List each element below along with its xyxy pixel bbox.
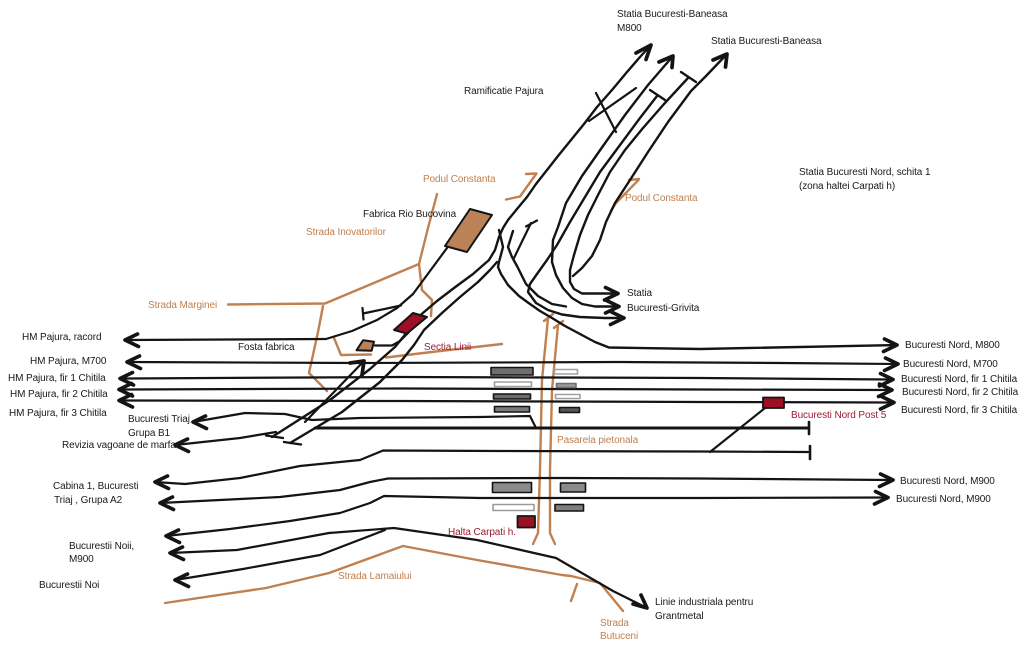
svg-text:Bucuresti Nord, M800: Bucuresti Nord, M800 bbox=[905, 340, 1000, 351]
svg-text:Bucuresti Nord Post 5: Bucuresti Nord Post 5 bbox=[791, 410, 887, 421]
svg-text:Bucuresti Nord, fir 2 Chitila: Bucuresti Nord, fir 2 Chitila bbox=[902, 387, 1019, 398]
svg-text:Bucuresti Nord, fir 1 Chitila: Bucuresti Nord, fir 1 Chitila bbox=[901, 374, 1018, 385]
svg-text:Pasarela pietonala: Pasarela pietonala bbox=[557, 435, 639, 446]
svg-text:HM Pajura, fir 3 Chitila: HM Pajura, fir 3 Chitila bbox=[9, 408, 107, 419]
svg-text:(zona haltei Carpati h): (zona haltei Carpati h) bbox=[799, 181, 895, 192]
svg-text:Podul Constanta: Podul Constanta bbox=[423, 174, 496, 185]
svg-text:Bucuresti Triaj: Bucuresti Triaj bbox=[128, 414, 190, 425]
svg-text:Cabina 1, Bucuresti: Cabina 1, Bucuresti bbox=[53, 481, 138, 492]
svg-text:Strada: Strada bbox=[600, 618, 629, 629]
svg-text:Revizia vagoane de marfa: Revizia vagoane de marfa bbox=[62, 440, 176, 451]
svg-text:Bucuresti-Grivita: Bucuresti-Grivita bbox=[627, 303, 700, 314]
svg-text:Bucurestii Noi: Bucurestii Noi bbox=[39, 580, 99, 591]
svg-text:Strada Marginei: Strada Marginei bbox=[148, 300, 217, 311]
svg-text:Bucurestii Noii,: Bucurestii Noii, bbox=[69, 541, 134, 552]
svg-text:Butuceni: Butuceni bbox=[600, 631, 638, 642]
svg-text:M900: M900 bbox=[69, 554, 94, 565]
svg-text:Podul Constanta: Podul Constanta bbox=[625, 193, 698, 204]
svg-text:HM Pajura, M700: HM Pajura, M700 bbox=[30, 356, 107, 367]
svg-text:Statia Bucuresti-Baneasa: Statia Bucuresti-Baneasa bbox=[711, 36, 822, 47]
svg-text:Statia Bucuresti Nord, schita: Statia Bucuresti Nord, schita 1 bbox=[799, 167, 931, 178]
svg-text:Bucuresti Nord, M900: Bucuresti Nord, M900 bbox=[900, 476, 995, 487]
svg-text:Strada Lamaiului: Strada Lamaiului bbox=[338, 571, 411, 582]
svg-text:Halta Carpati h.: Halta Carpati h. bbox=[448, 527, 516, 538]
svg-text:Sectia Linii: Sectia Linii bbox=[424, 342, 471, 353]
svg-text:Strada Inovatorilor: Strada Inovatorilor bbox=[306, 227, 387, 238]
svg-text:HM Pajura, racord: HM Pajura, racord bbox=[22, 332, 101, 343]
svg-text:HM Pajura, fir 1 Chitila: HM Pajura, fir 1 Chitila bbox=[8, 373, 106, 384]
svg-text:Grantmetal: Grantmetal bbox=[655, 611, 703, 622]
svg-text:Bucuresti Nord, M900: Bucuresti Nord, M900 bbox=[896, 494, 991, 505]
svg-text:Triaj , Grupa A2: Triaj , Grupa A2 bbox=[54, 495, 123, 506]
svg-text:Grupa B1: Grupa B1 bbox=[128, 428, 171, 439]
svg-text:Ramificatie Pajura: Ramificatie Pajura bbox=[464, 86, 544, 97]
svg-text:Linie industriala pentru: Linie industriala pentru bbox=[655, 597, 753, 608]
svg-text:Fabrica Rio Bucovina: Fabrica Rio Bucovina bbox=[363, 209, 457, 220]
svg-text:Statia: Statia bbox=[627, 288, 653, 299]
svg-text:Statia Bucuresti-Baneasa: Statia Bucuresti-Baneasa bbox=[617, 9, 728, 20]
svg-text:Bucuresti Nord, M700: Bucuresti Nord, M700 bbox=[903, 359, 998, 370]
svg-text:Fosta fabrica: Fosta fabrica bbox=[238, 342, 295, 353]
svg-text:Bucuresti Nord, fir 3 Chitila: Bucuresti Nord, fir 3 Chitila bbox=[901, 405, 1018, 416]
svg-text:M800: M800 bbox=[617, 23, 642, 34]
svg-text:HM Pajura, fir 2 Chitila: HM Pajura, fir 2 Chitila bbox=[10, 389, 108, 400]
